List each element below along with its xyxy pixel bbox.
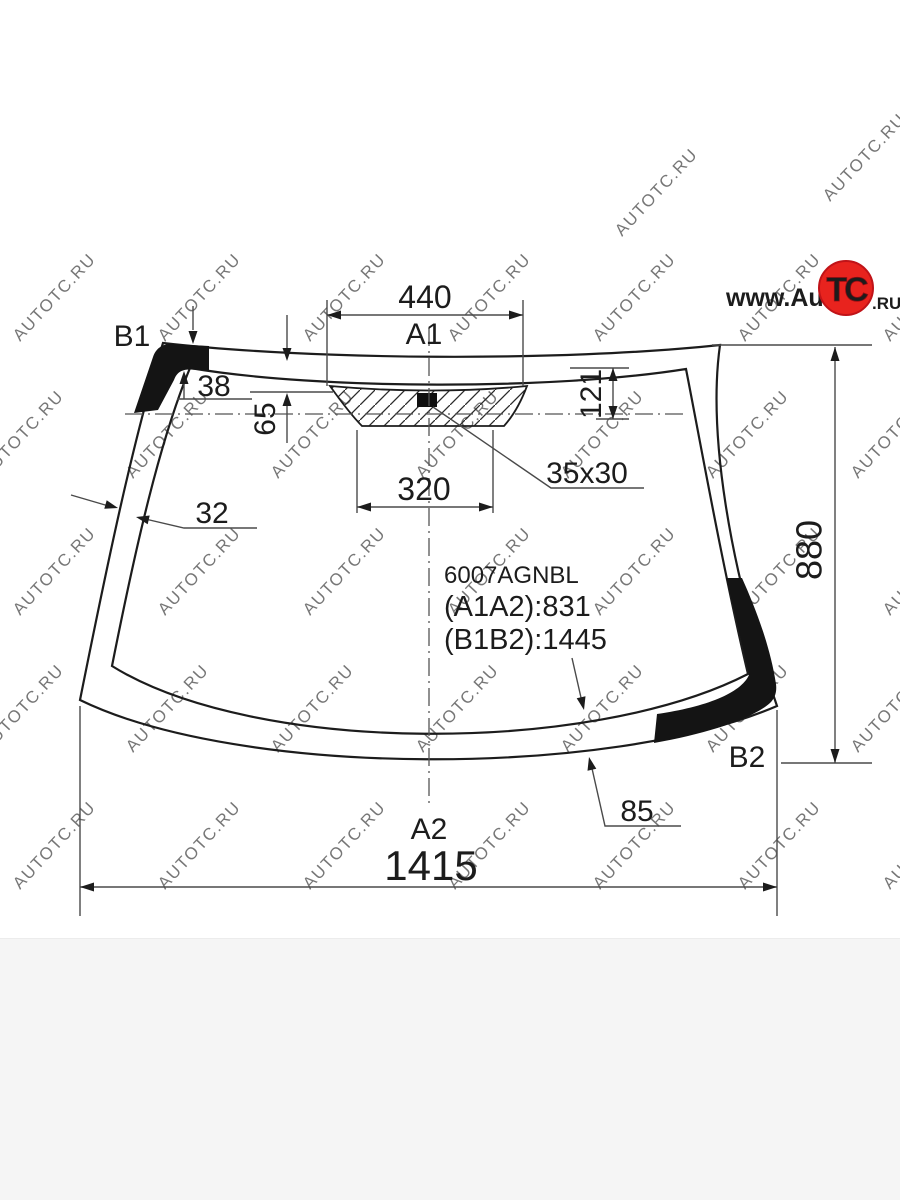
watermark-text: AUTOTC.RU — [412, 661, 503, 756]
watermark-text: AUTOTC.RU — [589, 250, 680, 345]
watermark-text: AUTOTC.RU — [847, 387, 900, 482]
watermark-text: AUTOTC.RU — [557, 661, 648, 756]
dim-glass-height: 880 — [789, 520, 830, 580]
label-a1: A1 — [406, 318, 443, 351]
dim-band-bottom-width: 85 — [620, 795, 653, 828]
part-number: 6007AGNBL — [444, 562, 579, 589]
watermark-text: AUTOTC.RU — [0, 661, 68, 756]
dim-band-top-width: 38 — [197, 370, 230, 403]
part-dim-a1a2: (A1A2):831 — [444, 591, 591, 623]
watermark-text: AUTOTC.RU — [847, 661, 900, 756]
watermark-text: AUTOTC.RU — [154, 798, 245, 893]
watermark-text: AUTOTC.RU — [734, 798, 825, 893]
footer-area — [0, 938, 900, 1200]
windshield-diagram-page: AUTOTC.RUAUTOTC.RUAUTOTC.RUAUTOTC.RUAUTO… — [0, 0, 900, 1200]
dim-pad-height: 121 — [575, 369, 608, 419]
dim-pad-bottom-width: 320 — [397, 471, 450, 507]
watermark-text: AUTOTC.RU — [879, 798, 900, 893]
watermark-text: AUTOTC.RU — [154, 250, 245, 345]
dim-top-opening-width: 440 — [398, 279, 451, 315]
watermark-text: AUTOTC.RU — [819, 110, 900, 205]
dim-sensor-offset: 65 — [249, 402, 282, 435]
watermark-text: AUTOTC.RU — [122, 661, 213, 756]
watermark-text: AUTOTC.RU — [9, 524, 100, 619]
dim-glass-bottom-width: 1415 — [384, 842, 477, 889]
part-dim-b1b2: (B1B2):1445 — [444, 624, 607, 656]
watermark-text: AUTOTC.RU — [444, 250, 535, 345]
sensor-square — [417, 393, 437, 407]
watermark-text: AUTOTC.RU — [589, 524, 680, 619]
watermark-text: AUTOTC.RU — [0, 387, 68, 482]
watermark-text: AUTOTC.RU — [9, 798, 100, 893]
dim-sensor-size: 35x30 — [546, 457, 628, 490]
watermark-text: AUTOTC.RU — [299, 250, 390, 345]
watermark-text: AUTOTC.RU — [154, 524, 245, 619]
label-b1: B1 — [114, 320, 151, 353]
logo-ru: .RU — [872, 294, 900, 313]
dim-band-side-width: 32 — [195, 497, 228, 530]
watermark-text: AUTOTC.RU — [611, 145, 702, 240]
watermark-text: AUTOTC.RU — [879, 524, 900, 619]
watermark-text: AUTOTC.RU — [9, 250, 100, 345]
logo-tc: TC — [826, 271, 868, 309]
watermark-text: AUTOTC.RU — [299, 524, 390, 619]
watermark-text: AUTOTC.RU — [267, 661, 358, 756]
watermark-text: AUTOTC.RU — [299, 798, 390, 893]
label-b2: B2 — [729, 741, 766, 774]
windshield-diagram: AUTOTC.RUAUTOTC.RUAUTOTC.RUAUTOTC.RUAUTO… — [0, 0, 900, 938]
